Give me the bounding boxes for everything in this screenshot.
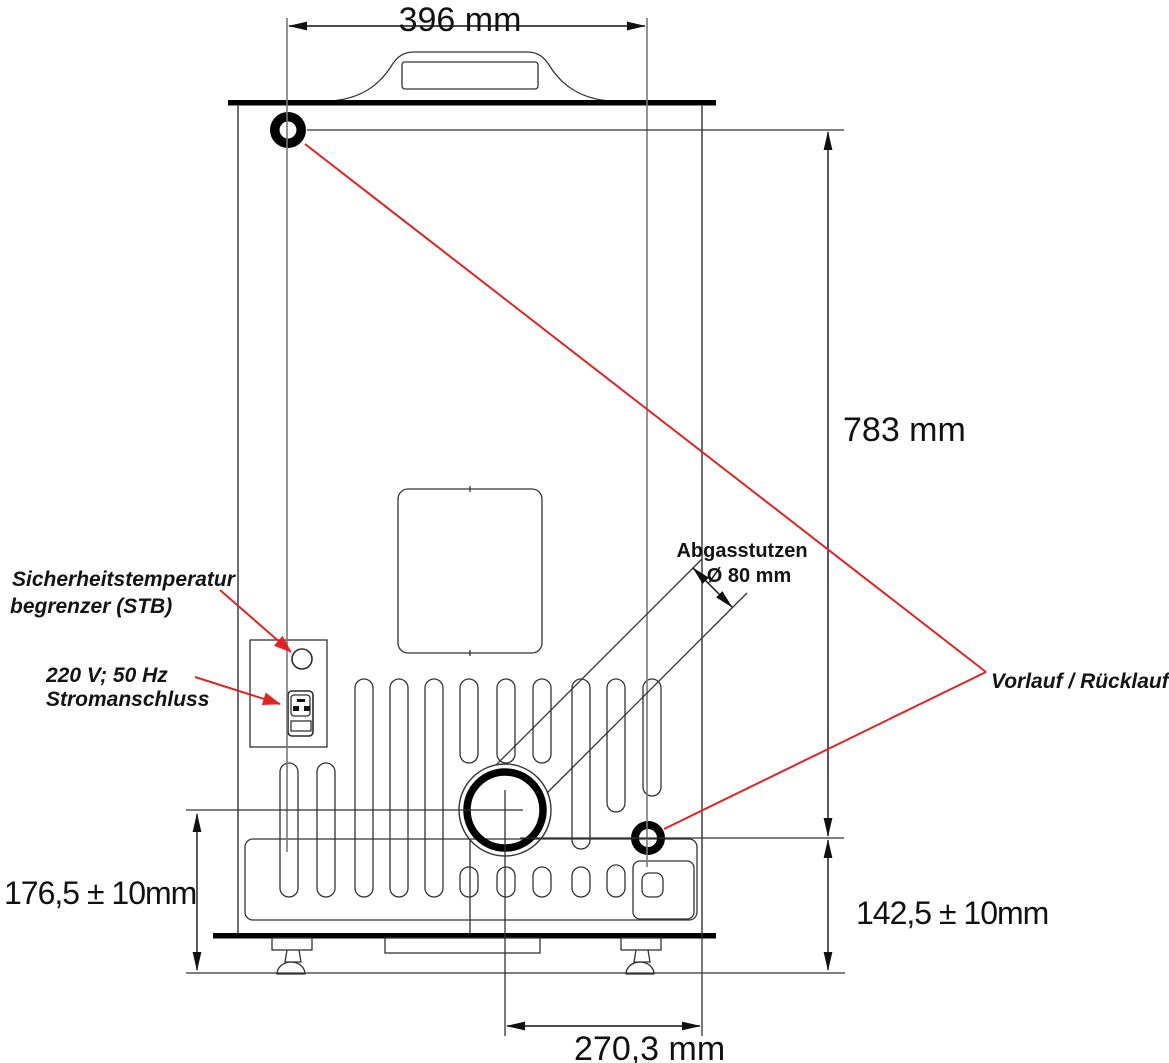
top-cap (330, 52, 611, 101)
top-cap-opening (402, 62, 538, 89)
socket-pin-right (304, 706, 310, 711)
vent-slot (572, 679, 590, 849)
foot-plate (272, 938, 312, 950)
vent-slot (607, 679, 625, 812)
power-label-line2: Stromanschluss (46, 688, 209, 711)
vent-slot (460, 679, 478, 763)
left-foot (272, 938, 312, 974)
flow-return-label: Vorlauf / Rücklauf (991, 670, 1169, 693)
exhaust-diameter-label: Ø 80 mm (707, 565, 791, 587)
socket-pin-top (297, 699, 305, 702)
flow-connection (275, 117, 301, 143)
dimension-exhaust-height: 176,5 ± 10mm (4, 814, 197, 970)
vent-slot (497, 679, 515, 763)
bottom-bracket (385, 938, 540, 953)
dim-top-width-label: 396 mm (399, 1, 522, 39)
technical-drawing-page: 396 mm 783 mm 176,5 ± 10mm 142,5 ± 10mm … (0, 0, 1169, 1063)
dim-overall-height-label: 783 mm (843, 411, 966, 449)
power-socket (288, 691, 313, 736)
dim-connection-height-label: 142,5 ± 10mm (856, 895, 1048, 931)
vent-slot (390, 679, 408, 897)
power-label-line1: 220 V; 50 Hz (45, 664, 168, 687)
power-socket-body (288, 691, 313, 736)
leader-flow-top (305, 144, 986, 672)
dimension-top-width: 396 mm (289, 1, 645, 39)
vent-slot (317, 763, 335, 897)
socket-pin-left (293, 706, 299, 711)
vent-slot (533, 679, 551, 763)
vent-slot (355, 679, 373, 897)
right-foot (621, 938, 661, 974)
appliance-dimension-diagram: 396 mm 783 mm 176,5 ± 10mm 142,5 ± 10mm … (0, 0, 1169, 1063)
dimension-exhaust-diameter: Abgasstutzen Ø 80 mm (496, 540, 808, 793)
foot-stem (285, 950, 301, 962)
vent-slot (460, 867, 478, 897)
vent-hole-square (642, 873, 663, 897)
dim-exhaust-height-label: 176,5 ± 10mm (4, 875, 196, 911)
appliance-body (213, 52, 716, 974)
vent-slot (425, 679, 443, 897)
inspection-panel (398, 489, 542, 653)
lower-panel (245, 839, 697, 920)
electrical-panel (250, 640, 327, 747)
power-socket-inlet (291, 695, 310, 716)
vent-slot (607, 865, 625, 897)
power-socket-slot (291, 721, 311, 731)
exhaust-name-label: Abgasstutzen (676, 540, 807, 562)
dimension-connection-height: 142,5 ± 10mm (828, 840, 1048, 970)
diameter-extension-a (496, 559, 702, 765)
vent-slot (497, 867, 515, 897)
foot-dome (277, 962, 305, 974)
vent-slot (572, 867, 590, 897)
dimension-exhaust-offset: 270,3 mm (507, 1026, 725, 1063)
foot-plate (621, 938, 661, 950)
vent-slot (280, 763, 298, 897)
stb-reset-hole (292, 649, 312, 669)
foot-stem (634, 950, 650, 962)
vent-slot (643, 679, 661, 796)
leader-return-bottom (664, 672, 986, 829)
stb-label-line2: begrenzer (STB) (10, 595, 172, 618)
dimension-overall-height: 783 mm (828, 132, 966, 836)
dim-exhaust-offset-label: 270,3 mm (574, 1030, 725, 1063)
leader-stb (220, 590, 291, 652)
foot-dome (626, 962, 654, 974)
vent-slot (533, 867, 551, 897)
top-plate (228, 100, 716, 106)
stb-label-line1: Sicherheitstemperatur (12, 568, 237, 591)
